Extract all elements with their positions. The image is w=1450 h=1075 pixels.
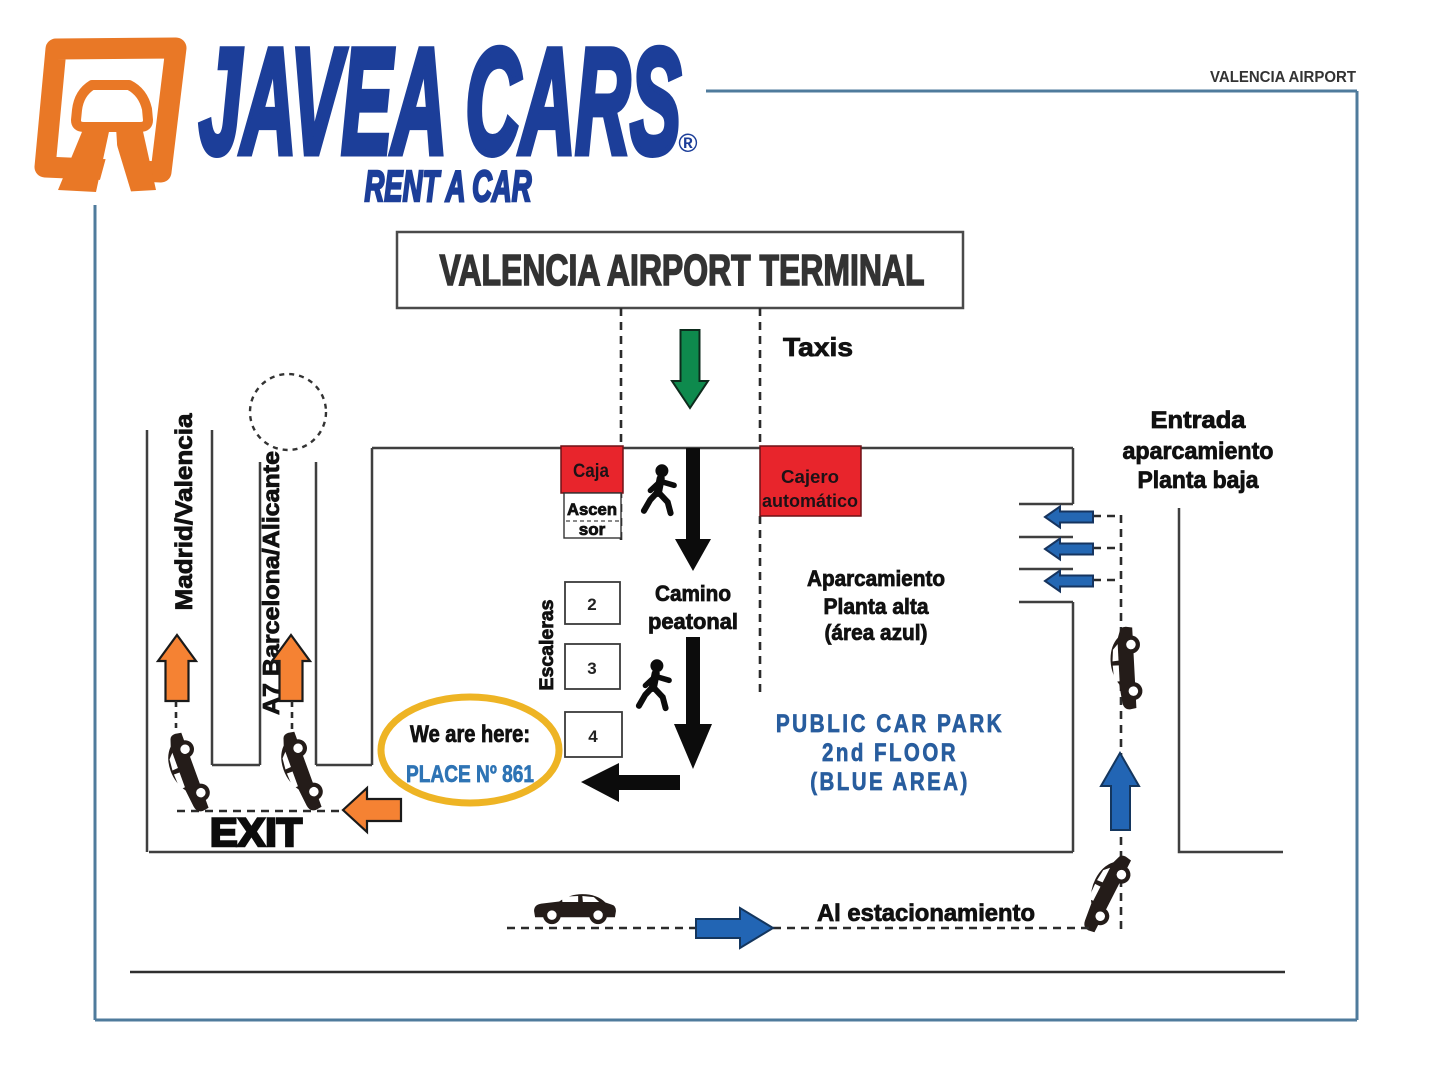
svg-text:(área azul): (área azul) <box>825 620 928 645</box>
svg-text:EXIT: EXIT <box>210 811 302 855</box>
svg-text:VALENCIA AIRPORT: VALENCIA AIRPORT <box>1210 69 1356 86</box>
svg-text:Entrada: Entrada <box>1151 407 1247 434</box>
svg-text:JAVEA CARS: JAVEA CARS <box>199 17 681 185</box>
svg-text:Ascen: Ascen <box>567 500 617 519</box>
svg-text:Madrid/Valencia: Madrid/Valencia <box>171 413 198 611</box>
svg-text:Caja: Caja <box>573 461 609 482</box>
svg-text:Taxis: Taxis <box>783 332 853 362</box>
svg-text:peatonal: peatonal <box>648 609 738 634</box>
svg-text:Cajero: Cajero <box>781 467 839 487</box>
svg-text:PLACE Nº 861: PLACE Nº 861 <box>406 761 534 788</box>
svg-text:Aparcamiento: Aparcamiento <box>807 566 945 591</box>
svg-text:Escaleras: Escaleras <box>537 600 558 691</box>
svg-text:RENT A CAR: RENT A CAR <box>365 162 532 211</box>
svg-text:VALENCIA AIRPORT TERMINAL: VALENCIA AIRPORT TERMINAL <box>440 246 925 295</box>
svg-text:4: 4 <box>588 727 598 746</box>
svg-text:Planta baja: Planta baja <box>1138 467 1260 494</box>
svg-text:Planta alta: Planta alta <box>824 594 930 619</box>
svg-text:®: ® <box>678 128 697 158</box>
svg-text:2nd FLOOR: 2nd FLOOR <box>822 738 958 766</box>
svg-text:We are here:: We are here: <box>410 721 530 748</box>
svg-text:(BLUE AREA): (BLUE AREA) <box>810 767 970 795</box>
svg-text:Al estacionamiento: Al estacionamiento <box>817 900 1035 927</box>
svg-text:2: 2 <box>587 595 596 614</box>
svg-text:Camino: Camino <box>655 581 731 606</box>
svg-text:automático: automático <box>762 491 858 511</box>
svg-text:sor: sor <box>579 520 606 539</box>
svg-text:aparcamiento: aparcamiento <box>1123 438 1274 465</box>
svg-text:PUBLIC CAR PARK: PUBLIC CAR PARK <box>776 709 1004 737</box>
svg-text:3: 3 <box>587 659 596 678</box>
